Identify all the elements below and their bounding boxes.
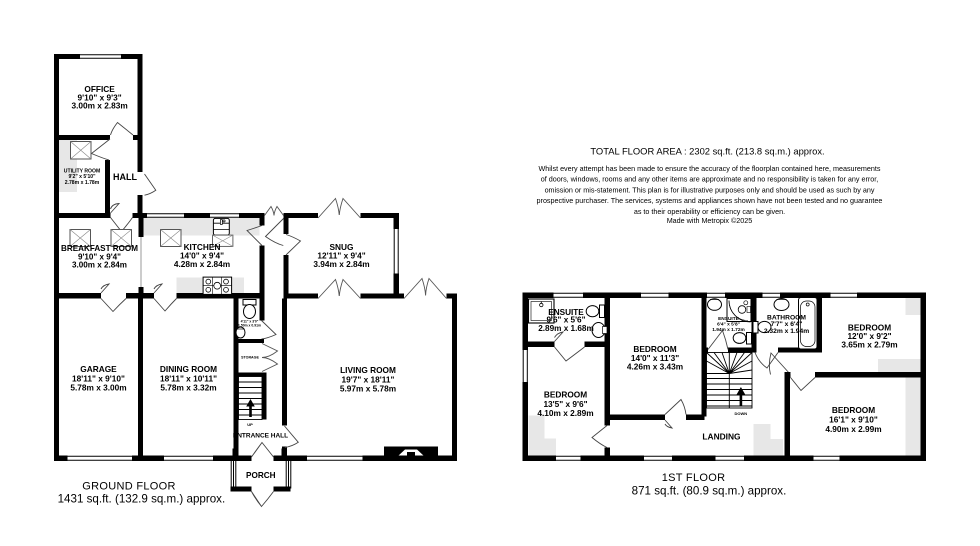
- svg-text:2.89m x 1.68m: 2.89m x 1.68m: [538, 324, 594, 333]
- svg-text:3.65m x 2.79m: 3.65m x 2.79m: [841, 339, 897, 349]
- svg-text:Whilst every attempt has been: Whilst every attempt has been made to en…: [539, 164, 881, 173]
- svg-text:4.26m x 3.43m: 4.26m x 3.43m: [627, 362, 683, 372]
- svg-text:2.78m x 1.78m: 2.78m x 1.78m: [65, 180, 100, 186]
- svg-text:1ST FLOOR: 1ST FLOOR: [662, 472, 726, 484]
- svg-text:TOTAL FLOOR AREA : 2302 sq.ft.: TOTAL FLOOR AREA : 2302 sq.ft. (213.8 sq…: [590, 146, 824, 157]
- svg-text:3.00m x 2.84m: 3.00m x 2.84m: [72, 261, 127, 270]
- svg-text:1.94m x 1.72m: 1.94m x 1.72m: [712, 327, 745, 333]
- svg-text:4.10m x 2.89m: 4.10m x 2.89m: [537, 408, 593, 418]
- svg-text:HALL: HALL: [113, 172, 137, 182]
- svg-text:871 sq.ft. (80.9 sq.m.) approx: 871 sq.ft. (80.9 sq.m.) approx.: [632, 484, 787, 497]
- svg-text:1431 sq.ft. (132.9 sq.m.) appr: 1431 sq.ft. (132.9 sq.m.) approx.: [58, 492, 226, 505]
- svg-text:6'4" x 5'8": 6'4" x 5'8": [717, 322, 740, 328]
- svg-text:prospective purchaser. The ser: prospective purchaser. The services, sys…: [537, 196, 883, 205]
- svg-text:Made with Metropix ©2025: Made with Metropix ©2025: [667, 216, 753, 225]
- svg-text:4.90m x 2.99m: 4.90m x 2.99m: [825, 424, 881, 434]
- svg-text:omission or mis-statement. Thi: omission or mis-statement. This plan is …: [545, 185, 875, 194]
- svg-text:STORAGE: STORAGE: [241, 356, 259, 360]
- svg-text:5.97m x 5.78m: 5.97m x 5.78m: [340, 384, 396, 394]
- svg-text:3.94m x 2.84m: 3.94m x 2.84m: [313, 259, 369, 269]
- svg-text:4.28m x 2.84m: 4.28m x 2.84m: [174, 259, 230, 269]
- svg-text:LANDING: LANDING: [702, 431, 740, 441]
- svg-text:5.78m x 3.00m: 5.78m x 3.00m: [70, 382, 126, 392]
- svg-text:5.78m x 3.32m: 5.78m x 3.32m: [160, 382, 216, 392]
- svg-text:3.00m x 2.83m: 3.00m x 2.83m: [71, 101, 127, 111]
- svg-text:DOWN: DOWN: [734, 411, 747, 416]
- svg-text:of doors, windows, rooms and a: of doors, windows, rooms and any other i…: [541, 175, 879, 184]
- svg-text:PORCH: PORCH: [246, 471, 276, 480]
- svg-text:ENTRANCE HALL: ENTRANCE HALL: [233, 432, 288, 439]
- svg-text:BEDROOM: BEDROOM: [832, 405, 875, 415]
- svg-text:1.50m x 0.91m: 1.50m x 0.91m: [238, 324, 261, 328]
- svg-text:16'1" x 9'10": 16'1" x 9'10": [829, 415, 878, 425]
- svg-text:as to their operability or eff: as to their operability or efficiency ca…: [634, 207, 785, 216]
- svg-text:2.32m x 1.94m: 2.32m x 1.94m: [764, 328, 809, 335]
- svg-text:UP: UP: [247, 422, 253, 427]
- svg-text:GROUND FLOOR: GROUND FLOOR: [82, 481, 175, 493]
- svg-text:ENSUITE: ENSUITE: [718, 316, 740, 322]
